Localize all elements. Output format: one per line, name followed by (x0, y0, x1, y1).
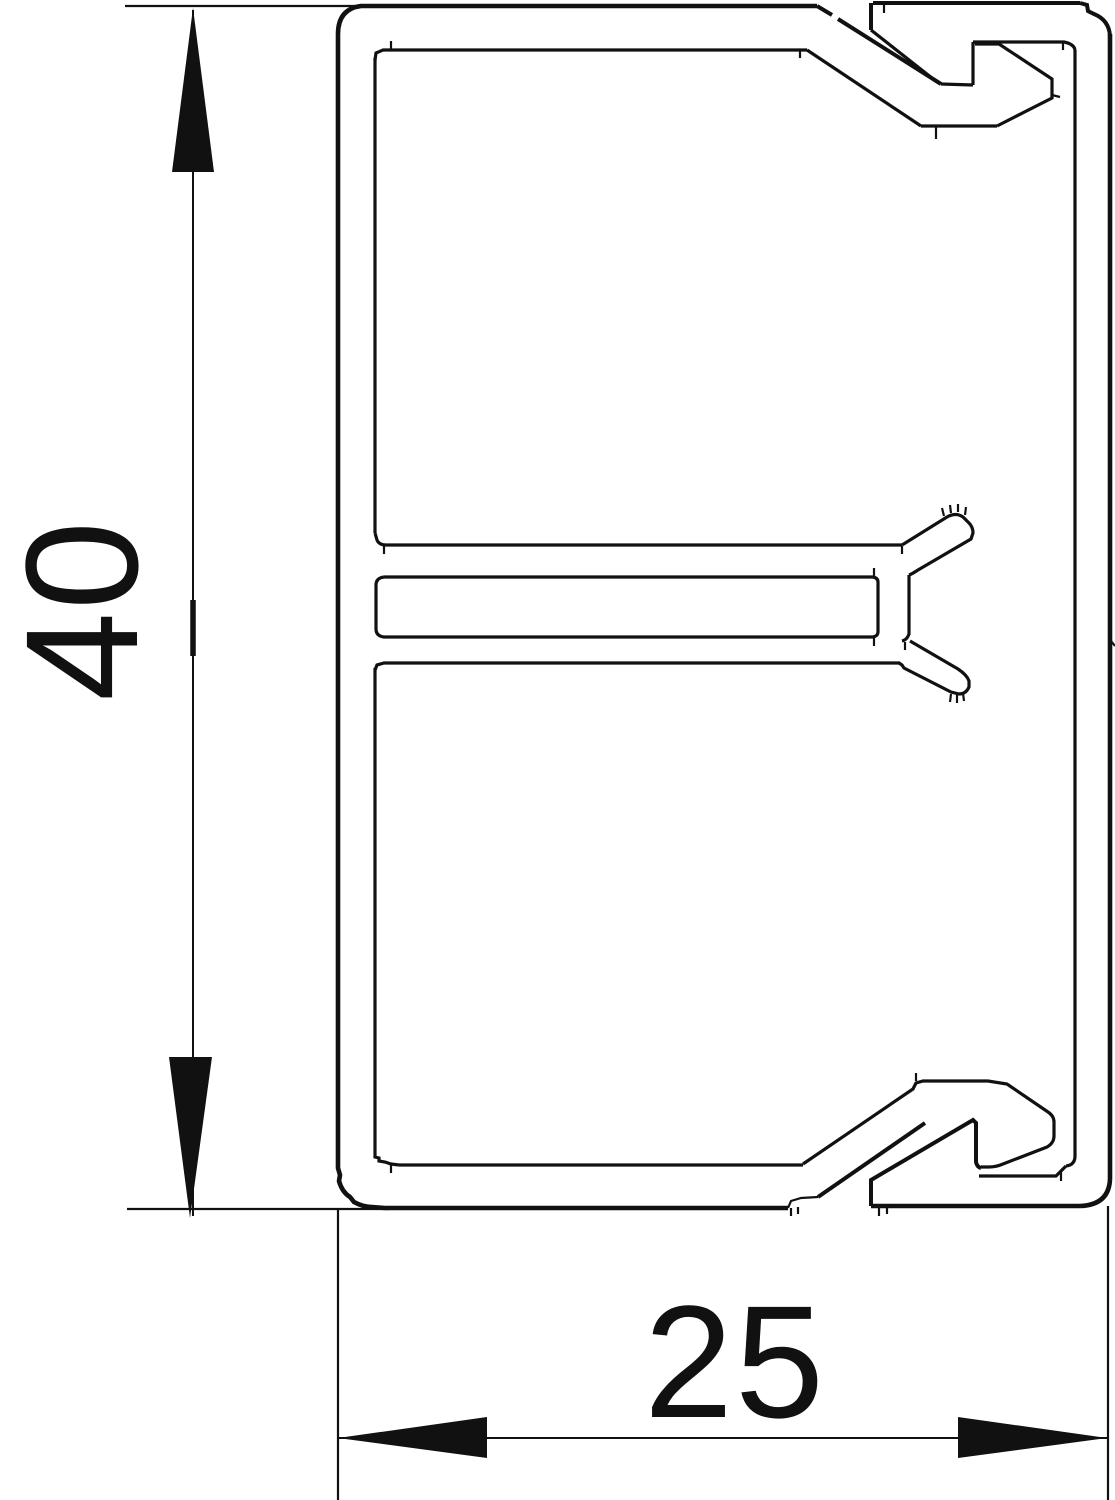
divider-slot-bar (376, 577, 878, 637)
fork-upper-arm (902, 515, 973, 576)
dim-label-height: 40 (0, 519, 171, 701)
base-top-outer-diagonal (817, 6, 832, 15)
lower-cavity-corner-stairs (375, 1152, 399, 1165)
serration-tick (965, 507, 966, 515)
bottom-claw-outline (803, 1081, 1054, 1167)
serration-tick (942, 508, 944, 516)
dim-arrow-right-icon (958, 1417, 1107, 1458)
fork-lower-arm (899, 641, 969, 694)
cover-top-right-corner (1080, 3, 1110, 36)
base-inner-top-edge (375, 50, 807, 60)
cover-underside-edge (973, 42, 1075, 50)
fork-stem (902, 575, 909, 641)
lower-cavity-top-edge (375, 663, 900, 670)
dim-arrow-down-icon (169, 1057, 212, 1218)
base-outer-contour (338, 6, 817, 1208)
serration-tick (950, 505, 951, 513)
claw-tip-outline (975, 44, 1052, 126)
divider-assembly (376, 504, 973, 703)
serration-tick (950, 694, 951, 702)
cover-underside-diagonal (871, 30, 937, 82)
base-top-tip-edge (941, 84, 973, 85)
base-profile (338, 6, 1060, 1216)
base-bottom-jog (788, 1197, 818, 1208)
dimension-height-40: 40 (0, 6, 390, 1218)
dim-arrow-left-icon (338, 1417, 487, 1458)
technical-drawing-page: 40 25 (0, 0, 1115, 1500)
dim-label-width: 25 (644, 1272, 826, 1451)
dim-arrow-up-icon (172, 8, 214, 172)
cover-bottom-right-corner (1080, 1179, 1110, 1206)
dimension-width-25: 25 (338, 1206, 1108, 1500)
upper-cavity-corner-jog (375, 533, 386, 545)
serration-tick (963, 693, 964, 701)
cover-inner-wall (1066, 50, 1075, 1166)
technical-drawing-canvas: 40 25 (0, 0, 1115, 1500)
cover-bottom-hook (871, 1120, 981, 1206)
